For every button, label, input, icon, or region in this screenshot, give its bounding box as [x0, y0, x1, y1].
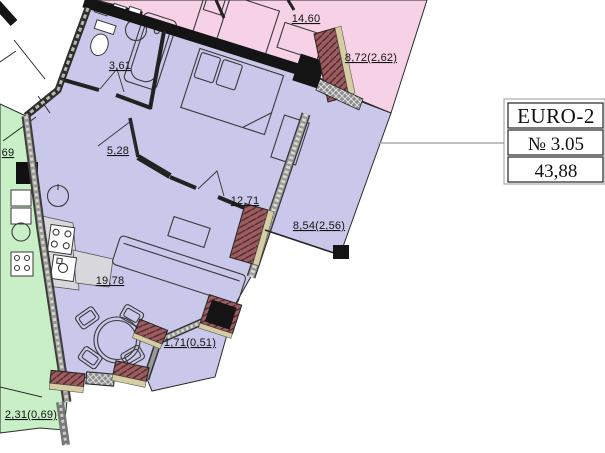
- unit-type: EURO-2: [517, 104, 595, 128]
- label-neighbor-left: 69: [2, 147, 15, 159]
- label-balcony-bottom: 1,71(0,51): [164, 337, 216, 349]
- stove: [47, 224, 75, 254]
- label-living-kitchen: 19,78: [96, 275, 125, 287]
- balcony-post: [333, 245, 349, 259]
- kitchen-unit: [50, 255, 76, 282]
- label-neighbor-balcony: 8,72(2,62): [345, 52, 397, 64]
- label-green-balcony: 2,31(0,69): [5, 409, 57, 421]
- unit-number: № 3.05: [528, 134, 584, 155]
- label-neighbor-bedroom: 14,60: [292, 13, 321, 25]
- label-balcony-right: 8,54(2,56): [293, 220, 345, 232]
- unit-area: 43,88: [535, 161, 578, 182]
- label-bathroom: 3,61: [109, 60, 131, 72]
- corner-wall-stub: [0, 4, 14, 23]
- label-hallway: 5,28: [107, 145, 129, 157]
- label-bedroom: 12,71: [231, 195, 260, 207]
- floor-plan: 14,60 8,72(2,62) 3,61 5,28 12,71 8,54(2,…: [0, 0, 605, 453]
- unit-info-table: EURO-2 № 3.05 43,88: [378, 99, 605, 184]
- floorplan-page: 14,60 8,72(2,62) 3,61 5,28 12,71 8,54(2,…: [0, 0, 605, 453]
